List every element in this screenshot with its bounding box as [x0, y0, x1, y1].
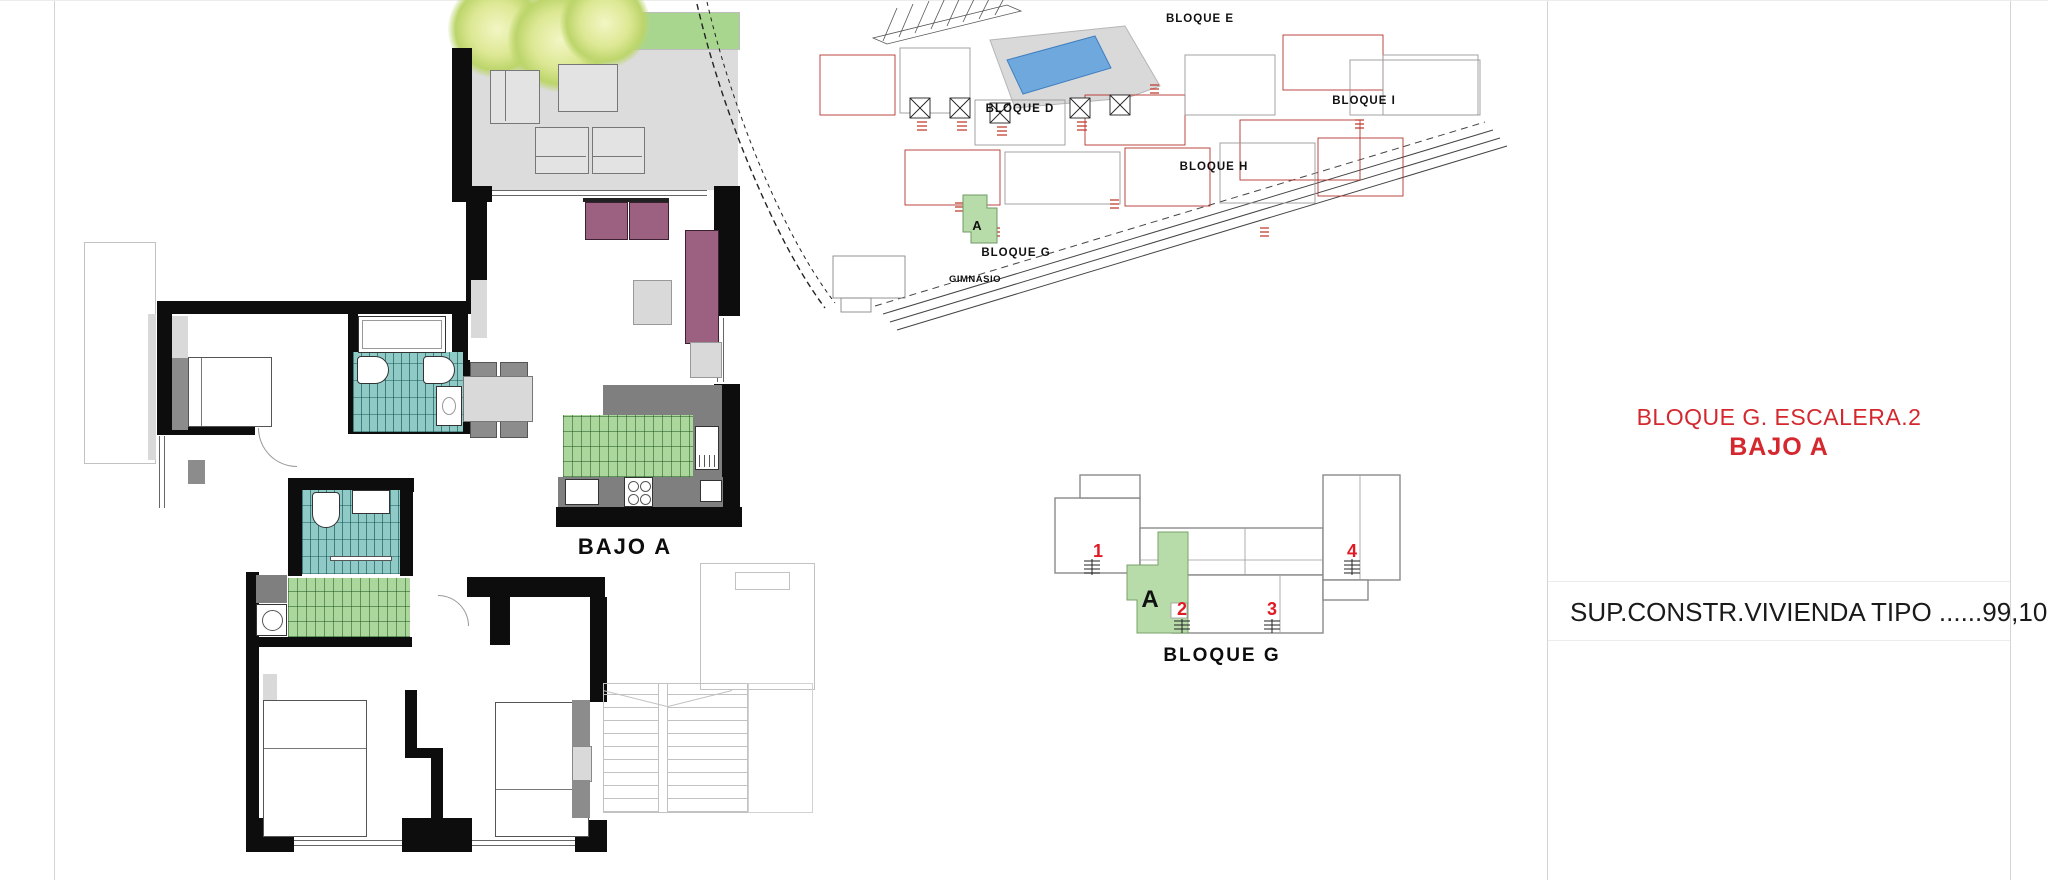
bathroom-sink [352, 490, 390, 514]
site-unit-a-label: A [972, 218, 982, 233]
fridge [695, 426, 719, 470]
washing-machine [256, 604, 287, 636]
wall [452, 48, 472, 188]
bed-line [201, 358, 202, 426]
parking-hatch [873, 0, 1021, 44]
plot-boundary [697, 4, 825, 308]
window [294, 840, 402, 841]
wall [431, 758, 443, 820]
burner [628, 481, 639, 492]
side-table [690, 342, 722, 378]
plot-boundary [707, 2, 835, 303]
site-label-gimnasio: GIMNASIO [949, 274, 1001, 285]
basin [442, 397, 456, 415]
laundry-floor [288, 578, 410, 637]
wardrobe [572, 780, 590, 818]
sofa-cushion [585, 202, 628, 240]
burner [640, 481, 651, 492]
key-plan-unit-a-label: A [1141, 586, 1158, 613]
window [164, 436, 165, 508]
wall [402, 818, 472, 852]
door-arc [258, 428, 297, 467]
window [472, 840, 575, 841]
building-masses [820, 35, 1480, 206]
site-plan: A BLOQUE E BLOQUE D BLOQUE H BLOQUE I BL… [655, 0, 1515, 335]
wall [467, 577, 605, 597]
terrace-lounger [490, 70, 540, 124]
fridge-vents [699, 455, 715, 467]
frame-right-line [2010, 0, 2011, 880]
kitchen-cabinet [700, 480, 722, 502]
toilet [357, 356, 389, 384]
wall [405, 748, 443, 758]
wall [556, 507, 742, 527]
cabinet [188, 460, 205, 484]
key-plan: A 1 2 3 4 BLOQUE G [1040, 465, 1440, 670]
chair-line [536, 156, 586, 157]
stair-number-3: 3 [1267, 599, 1277, 619]
laundry-counter [256, 575, 287, 603]
bathtub-inner [362, 320, 442, 349]
terrace-chair [535, 127, 589, 174]
ledge [148, 314, 156, 460]
key-plan-label: BLOQUE G [1163, 645, 1280, 666]
info-title-line1: BLOQUE G. ESCALERA.2 [1548, 404, 2010, 431]
info-panel-title: BLOQUE G. ESCALERA.2 BAJO A [1548, 404, 2010, 462]
terrace-table [558, 64, 618, 112]
gimnasio-outline [833, 256, 905, 312]
bed [263, 700, 367, 837]
lounger-line [505, 71, 506, 121]
bidet [423, 356, 455, 384]
wardrobe [572, 700, 590, 746]
door-arc [438, 595, 469, 626]
burner [628, 494, 639, 505]
shaft-outline [735, 572, 790, 590]
stair-landing [748, 683, 813, 813]
stair-number-2: 2 [1177, 599, 1187, 619]
wardrobe [263, 674, 277, 700]
site-label-bloque-i: BLOQUE I [1332, 95, 1396, 107]
site-label-bloque-g: BLOQUE G [981, 247, 1050, 259]
site-label-bloque-h: BLOQUE H [1180, 161, 1249, 173]
wall [405, 690, 417, 750]
kitchen-sink [565, 479, 599, 505]
terrace-chair [592, 127, 645, 174]
site-label-bloque-d: BLOQUE D [986, 103, 1055, 115]
communal-stairs [603, 683, 748, 813]
side-terrace [84, 242, 156, 464]
pilaster [471, 280, 487, 338]
drawing-sheet: BAJO A [0, 0, 2048, 880]
window [294, 845, 402, 846]
towel-rail [330, 556, 392, 561]
bathroom-sink [436, 386, 462, 426]
washer-drum [262, 610, 283, 631]
wall [288, 492, 302, 576]
kitchen-floor [563, 415, 693, 477]
bed-line [264, 748, 366, 749]
wall [157, 301, 468, 314]
wall [452, 186, 492, 202]
floor-plan-label: BAJO A [560, 534, 690, 560]
stair-number-4: 4 [1347, 541, 1357, 561]
site-label-bloque-e: BLOQUE E [1166, 13, 1234, 25]
dining-table [463, 376, 533, 422]
kitchen-counter [603, 385, 722, 417]
window [159, 436, 160, 508]
wall [490, 597, 510, 645]
stove [624, 477, 653, 507]
wardrobe [172, 358, 188, 430]
burner [640, 494, 651, 505]
wardrobe [172, 316, 188, 358]
window [472, 845, 575, 846]
wall [157, 314, 172, 430]
stair-number-1: 1 [1093, 541, 1103, 561]
toilet [312, 492, 340, 528]
chair-line [593, 156, 642, 157]
bathtub [358, 316, 446, 353]
surface-row: SUP.CONSTR.VIVIENDA TIPO ......99,10m2 [1548, 581, 2010, 641]
wall [256, 637, 412, 647]
bed [188, 357, 272, 427]
wardrobe [572, 746, 592, 782]
info-title-line2: BAJO A [1548, 433, 2010, 462]
stair-rail [658, 683, 668, 813]
wall [400, 492, 413, 576]
